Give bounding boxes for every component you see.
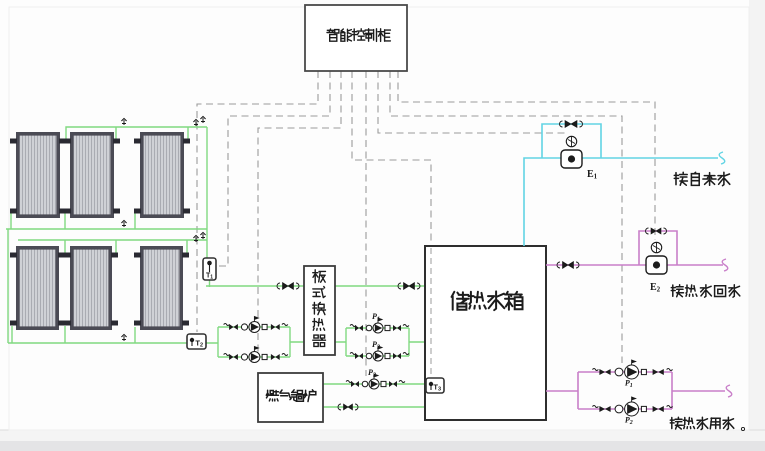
svg-text:T1: T1 (206, 273, 213, 281)
